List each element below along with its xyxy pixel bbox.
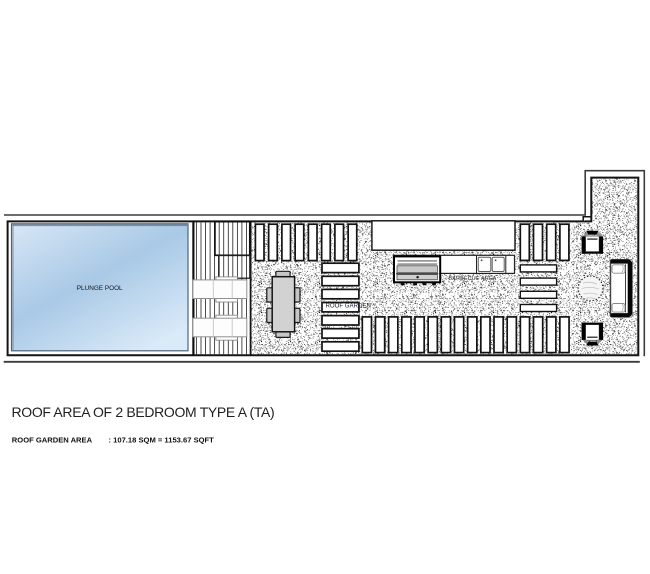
svg-text:ROOF GARDEN AREA: ROOF GARDEN AREA bbox=[12, 435, 93, 444]
svg-text:: 107.18 SQM = 1153.67 SQFT: : 107.18 SQM = 1153.67 SQFT bbox=[109, 435, 215, 444]
svg-text:PLUNGE POOL: PLUNGE POOL bbox=[77, 285, 123, 292]
svg-text:ROOF GARDEN: ROOF GARDEN bbox=[326, 302, 371, 309]
svg-text:BARBECUE AREA: BARBECUE AREA bbox=[449, 276, 497, 282]
svg-text:ROOF AREA OF 2 BEDROOM TYPE A: ROOF AREA OF 2 BEDROOM TYPE A (TA) bbox=[12, 404, 275, 420]
